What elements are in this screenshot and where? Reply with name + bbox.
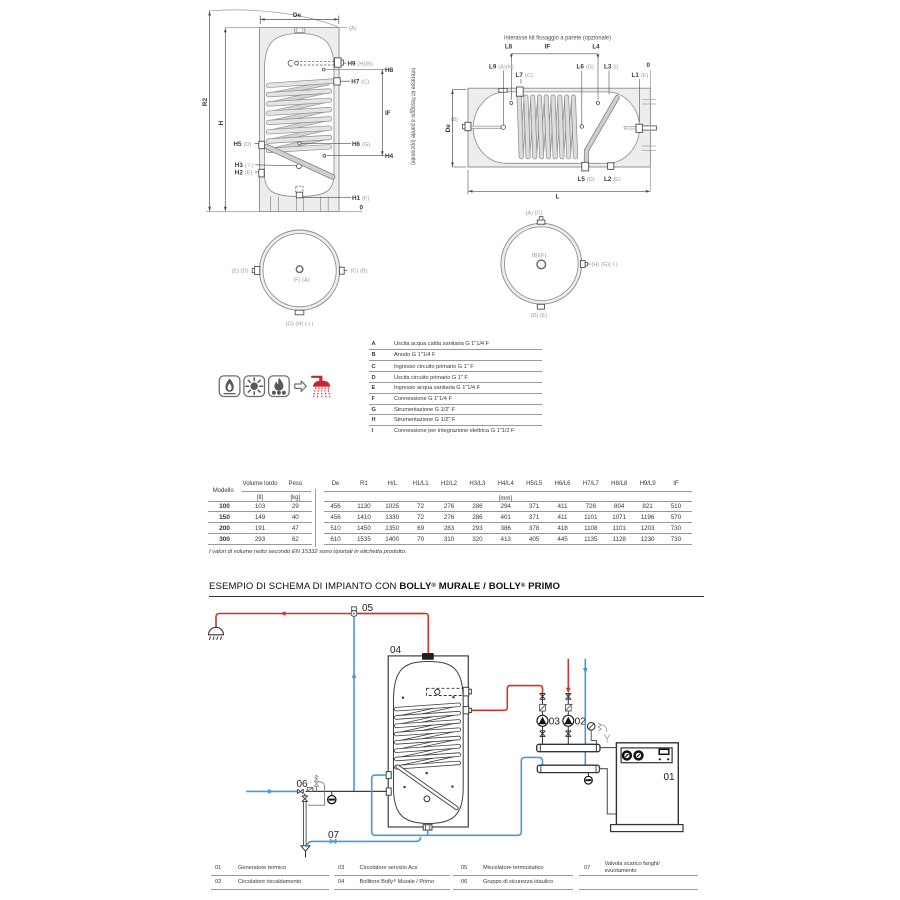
svg-text:(D) (E): (D) (E) [530, 313, 547, 319]
svg-text:(F): (F) [641, 73, 648, 79]
svg-text:R2: R2 [202, 97, 209, 106]
svg-text:05: 05 [362, 603, 374, 614]
svg-text:(F) (A): (F) (A) [293, 277, 310, 283]
svg-text:De: De [293, 12, 302, 19]
svg-text:(I): (I) [613, 65, 618, 71]
svg-text:H6: H6 [352, 141, 361, 148]
svg-text:(E): (E) [245, 171, 253, 177]
svg-text:L8: L8 [505, 44, 513, 51]
svg-text:(A) (C): (A) (C) [525, 210, 542, 216]
svg-text:06: 06 [297, 779, 309, 790]
svg-text:(A): (A) [349, 26, 357, 32]
svg-text:H9: H9 [348, 61, 357, 68]
svg-text:De: De [445, 124, 452, 133]
svg-text:(G): (G) [362, 142, 370, 148]
svg-text:(H)(B): (H)(B) [357, 62, 373, 68]
svg-text:L5: L5 [578, 176, 586, 183]
svg-text:(C): (C) [361, 80, 369, 86]
svg-text:L1: L1 [632, 72, 640, 79]
svg-text:(F): (F) [362, 196, 369, 202]
svg-text:0: 0 [647, 62, 651, 69]
svg-text:03: 03 [549, 716, 561, 727]
svg-text:(A)(H): (A)(H) [498, 65, 514, 71]
svg-text:( I ): ( I ) [245, 163, 254, 169]
svg-text:L6: L6 [577, 64, 585, 71]
svg-text:(G): (G) [586, 65, 594, 71]
svg-text:L9: L9 [489, 64, 497, 71]
svg-text:L: L [556, 194, 560, 201]
svg-text:(G) (H) ( I ): (G) (H) ( I ) [286, 322, 314, 328]
svg-text:02: 02 [575, 716, 587, 727]
svg-text:H7: H7 [351, 79, 360, 86]
svg-text:(C): (C) [525, 73, 533, 79]
svg-text:L3: L3 [604, 64, 612, 71]
svg-text:(B)(F): (B)(F) [532, 253, 547, 259]
svg-text:0: 0 [360, 204, 364, 211]
svg-text:Interasse kit fissaggio a pare: Interasse kit fissaggio a parete (opzion… [504, 35, 611, 41]
svg-text:L2: L2 [604, 176, 612, 183]
svg-text:L7: L7 [516, 72, 524, 79]
svg-text:H2: H2 [235, 170, 244, 177]
svg-text:H: H [218, 120, 225, 125]
svg-text:07: 07 [328, 830, 340, 841]
svg-text:H3: H3 [235, 162, 244, 169]
svg-text:(E): (E) [613, 177, 621, 183]
svg-text:IF: IF [385, 110, 391, 117]
svg-text:(D): (D) [587, 177, 595, 183]
svg-text:L4: L4 [592, 44, 600, 51]
svg-text:(E) (D): (E) (D) [231, 268, 248, 274]
svg-text:(B): (B) [451, 117, 459, 123]
svg-text:(C) (B): (C) (B) [351, 268, 368, 274]
svg-text:H5: H5 [234, 141, 243, 148]
svg-text:H8: H8 [385, 67, 394, 74]
svg-text:(D): (D) [244, 142, 252, 148]
svg-text:(H) (G)( I ): (H) (G)( I ) [591, 262, 617, 268]
svg-text:IF: IF [545, 44, 551, 51]
svg-text:H4: H4 [385, 153, 394, 160]
svg-text:Interasse kit fissaggio a pare: Interasse kit fissaggio a parete (opzion… [410, 68, 416, 165]
svg-text:01: 01 [664, 772, 676, 783]
svg-text:04: 04 [390, 645, 402, 656]
svg-text:H1: H1 [352, 195, 361, 202]
